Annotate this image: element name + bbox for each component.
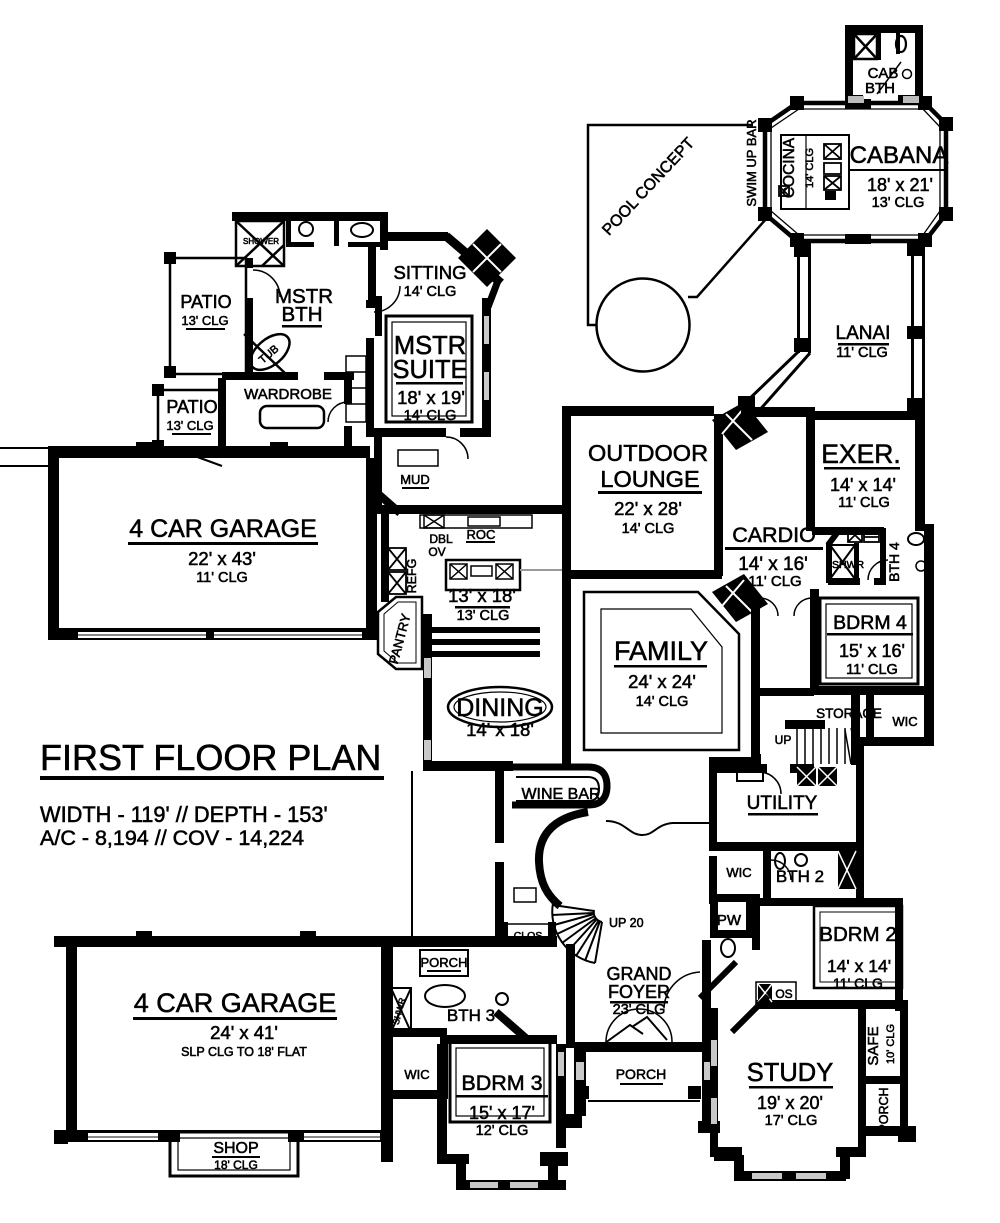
svg-text:22' x 28': 22' x 28' [614,498,682,519]
svg-text:EXER.: EXER. [821,439,901,469]
svg-text:SLP CLG TO 18' FLAT: SLP CLG TO 18' FLAT [181,1045,307,1059]
svg-text:SITTING: SITTING [394,262,467,283]
svg-text:18' CLG: 18' CLG [214,1158,258,1172]
svg-text:4 CAR GARAGE: 4 CAR GARAGE [134,988,337,1018]
svg-text:LOUNGE: LOUNGE [600,466,699,492]
svg-text:PATIO: PATIO [166,397,217,417]
svg-text:WARDROBE: WARDROBE [244,386,332,403]
svg-text:OV: OV [428,545,445,559]
svg-text:23' CLG: 23' CLG [613,1002,666,1018]
svg-text:14' CLG: 14' CLG [404,284,457,300]
svg-text:14' CLG: 14' CLG [636,694,689,710]
svg-text:COCINA: COCINA [781,137,798,198]
svg-text:18' x 21': 18' x 21' [867,175,933,195]
svg-text:14' CLG: 14' CLG [804,148,816,188]
svg-text:BTH 2: BTH 2 [776,867,824,886]
svg-text:A/C - 8,194 // COV - 14,224: A/C - 8,194 // COV - 14,224 [40,826,304,850]
svg-text:GRAND: GRAND [606,964,671,984]
svg-text:FIRST FLOOR PLAN: FIRST FLOOR PLAN [40,737,381,778]
svg-text:REFG: REFG [405,559,419,594]
svg-text:SHOP: SHOP [213,1140,258,1157]
svg-text:24' x 24': 24' x 24' [628,671,696,692]
svg-text:13' CLG: 13' CLG [872,195,925,211]
svg-text:22' x 43': 22' x 43' [188,548,256,569]
svg-text:12' CLG: 12' CLG [476,1123,529,1139]
svg-text:14' CLG: 14' CLG [404,408,457,424]
svg-text:11' CLG: 11' CLG [838,495,890,511]
svg-text:14' CLG: 14' CLG [622,521,675,537]
svg-text:18' x 19': 18' x 19' [397,387,465,408]
svg-text:OUTDOOR: OUTDOOR [588,440,708,466]
svg-text:11' CLG: 11' CLG [833,975,883,991]
svg-text:11' CLG: 11' CLG [846,662,898,678]
svg-text:LANAI: LANAI [836,323,891,344]
svg-text:CABANA: CABANA [850,142,949,169]
svg-text:SHOWER: SHOWER [243,237,279,246]
svg-text:UP 20: UP 20 [609,916,644,930]
svg-text:15' x 17': 15' x 17' [469,1103,535,1123]
svg-text:SHWR: SHWR [832,559,864,571]
svg-text:13' x 18': 13' x 18' [448,585,516,606]
svg-text:STUDY: STUDY [747,1059,833,1087]
svg-text:BTH 3: BTH 3 [447,1006,495,1025]
svg-text:4 CAR GARAGE: 4 CAR GARAGE [129,515,317,543]
svg-text:CARDIO: CARDIO [732,523,816,547]
svg-text:DINING: DINING [456,694,544,722]
svg-text:PATIO: PATIO [180,292,231,312]
svg-text:WIC: WIC [892,714,917,729]
svg-text:FOYER: FOYER [608,982,670,1002]
svg-text:24' x 41': 24' x 41' [210,1022,278,1043]
svg-text:17' CLG: 17' CLG [765,1113,818,1129]
svg-text:WIC: WIC [726,865,751,880]
svg-text:MUD: MUD [400,472,430,487]
svg-text:14' x 14': 14' x 14' [827,956,891,976]
svg-text:BTH: BTH [282,303,323,326]
svg-text:19' x 20': 19' x 20' [757,1093,823,1113]
svg-text:BTH: BTH [865,80,895,97]
svg-text:BDRM 3: BDRM 3 [461,1071,542,1095]
svg-text:UTILITY: UTILITY [747,793,818,814]
svg-text:OS: OS [775,987,792,1001]
svg-text:FAMILY: FAMILY [614,636,708,666]
svg-text:BTH 4: BTH 4 [886,542,902,582]
svg-text:ROC: ROC [467,527,496,542]
svg-text:11' CLG: 11' CLG [748,573,801,590]
svg-text:11' CLG: 11' CLG [836,345,888,361]
svg-text:14' x 14': 14' x 14' [830,475,896,495]
svg-text:13' CLG: 13' CLG [457,608,510,624]
svg-text:STORAGE: STORAGE [816,706,882,721]
svg-text:UP: UP [775,733,792,747]
svg-text:PW: PW [717,912,742,929]
svg-text:15' x 16': 15' x 16' [839,641,905,661]
svg-text:13' CLG: 13' CLG [181,313,228,328]
svg-text:14' x 18': 14' x 18' [466,719,534,740]
svg-text:WIDTH - 119' // DEPTH - 153': WIDTH - 119' // DEPTH - 153' [40,802,328,827]
svg-text:14' x 16': 14' x 16' [738,554,808,575]
svg-text:PORCH: PORCH [616,1066,667,1082]
svg-text:10' CLG: 10' CLG [885,1024,897,1064]
svg-text:WIC: WIC [404,1067,429,1082]
svg-text:DBL: DBL [429,532,453,546]
svg-text:PORCH: PORCH [877,1087,891,1132]
svg-text:SWIM UP BAR: SWIM UP BAR [744,119,759,206]
svg-text:PORCH: PORCH [421,955,468,970]
svg-text:BDRM 2: BDRM 2 [819,923,896,946]
svg-text:SUITE: SUITE [392,356,467,384]
svg-text:11' CLG: 11' CLG [196,570,248,586]
svg-text:BDRM 4: BDRM 4 [833,612,907,634]
svg-text:13' CLG: 13' CLG [166,418,213,433]
svg-text:SAFE: SAFE [865,1026,882,1065]
